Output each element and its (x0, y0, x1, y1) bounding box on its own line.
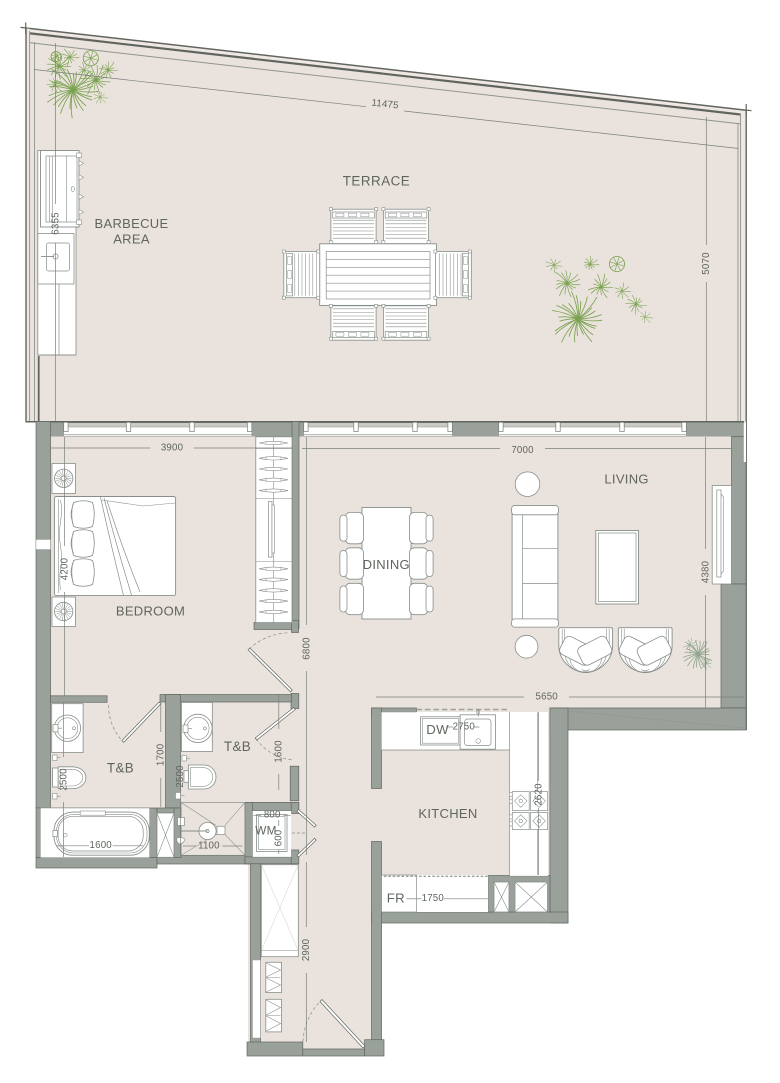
svg-text:5650: 5650 (536, 691, 559, 702)
svg-text:2500: 2500 (175, 765, 186, 788)
svg-text:BARBECUE: BARBECUE (95, 216, 169, 231)
svg-text:1750: 1750 (422, 893, 445, 904)
svg-text:BEDROOM: BEDROOM (116, 604, 185, 619)
svg-text:2500: 2500 (58, 768, 69, 791)
svg-text:600: 600 (273, 829, 284, 846)
svg-text:6355: 6355 (51, 212, 62, 234)
svg-text:2900: 2900 (301, 938, 312, 961)
svg-text:LIVING: LIVING (604, 471, 648, 486)
svg-text:DINING: DINING (363, 557, 410, 572)
svg-text:TERRACE: TERRACE (343, 174, 411, 189)
svg-text:4200: 4200 (59, 557, 70, 580)
svg-text:T&B: T&B (224, 739, 251, 754)
svg-text:800: 800 (264, 809, 281, 820)
svg-text:2750: 2750 (453, 721, 476, 732)
svg-text:6800: 6800 (302, 637, 313, 660)
svg-text:1100: 1100 (198, 840, 220, 851)
svg-text:KITCHEN: KITCHEN (418, 806, 477, 821)
svg-text:7000: 7000 (511, 445, 534, 456)
svg-text:5070: 5070 (701, 252, 712, 275)
svg-text:DW: DW (426, 722, 449, 737)
svg-text:1700: 1700 (156, 743, 167, 766)
svg-text:4380: 4380 (700, 560, 711, 583)
svg-text:3900: 3900 (161, 442, 184, 453)
svg-text:1600: 1600 (274, 740, 285, 763)
svg-text:AREA: AREA (113, 231, 150, 246)
svg-text:1600: 1600 (90, 840, 113, 851)
svg-text:T&B: T&B (107, 761, 134, 776)
svg-text:FR: FR (387, 891, 405, 906)
svg-text:2620: 2620 (533, 783, 544, 806)
